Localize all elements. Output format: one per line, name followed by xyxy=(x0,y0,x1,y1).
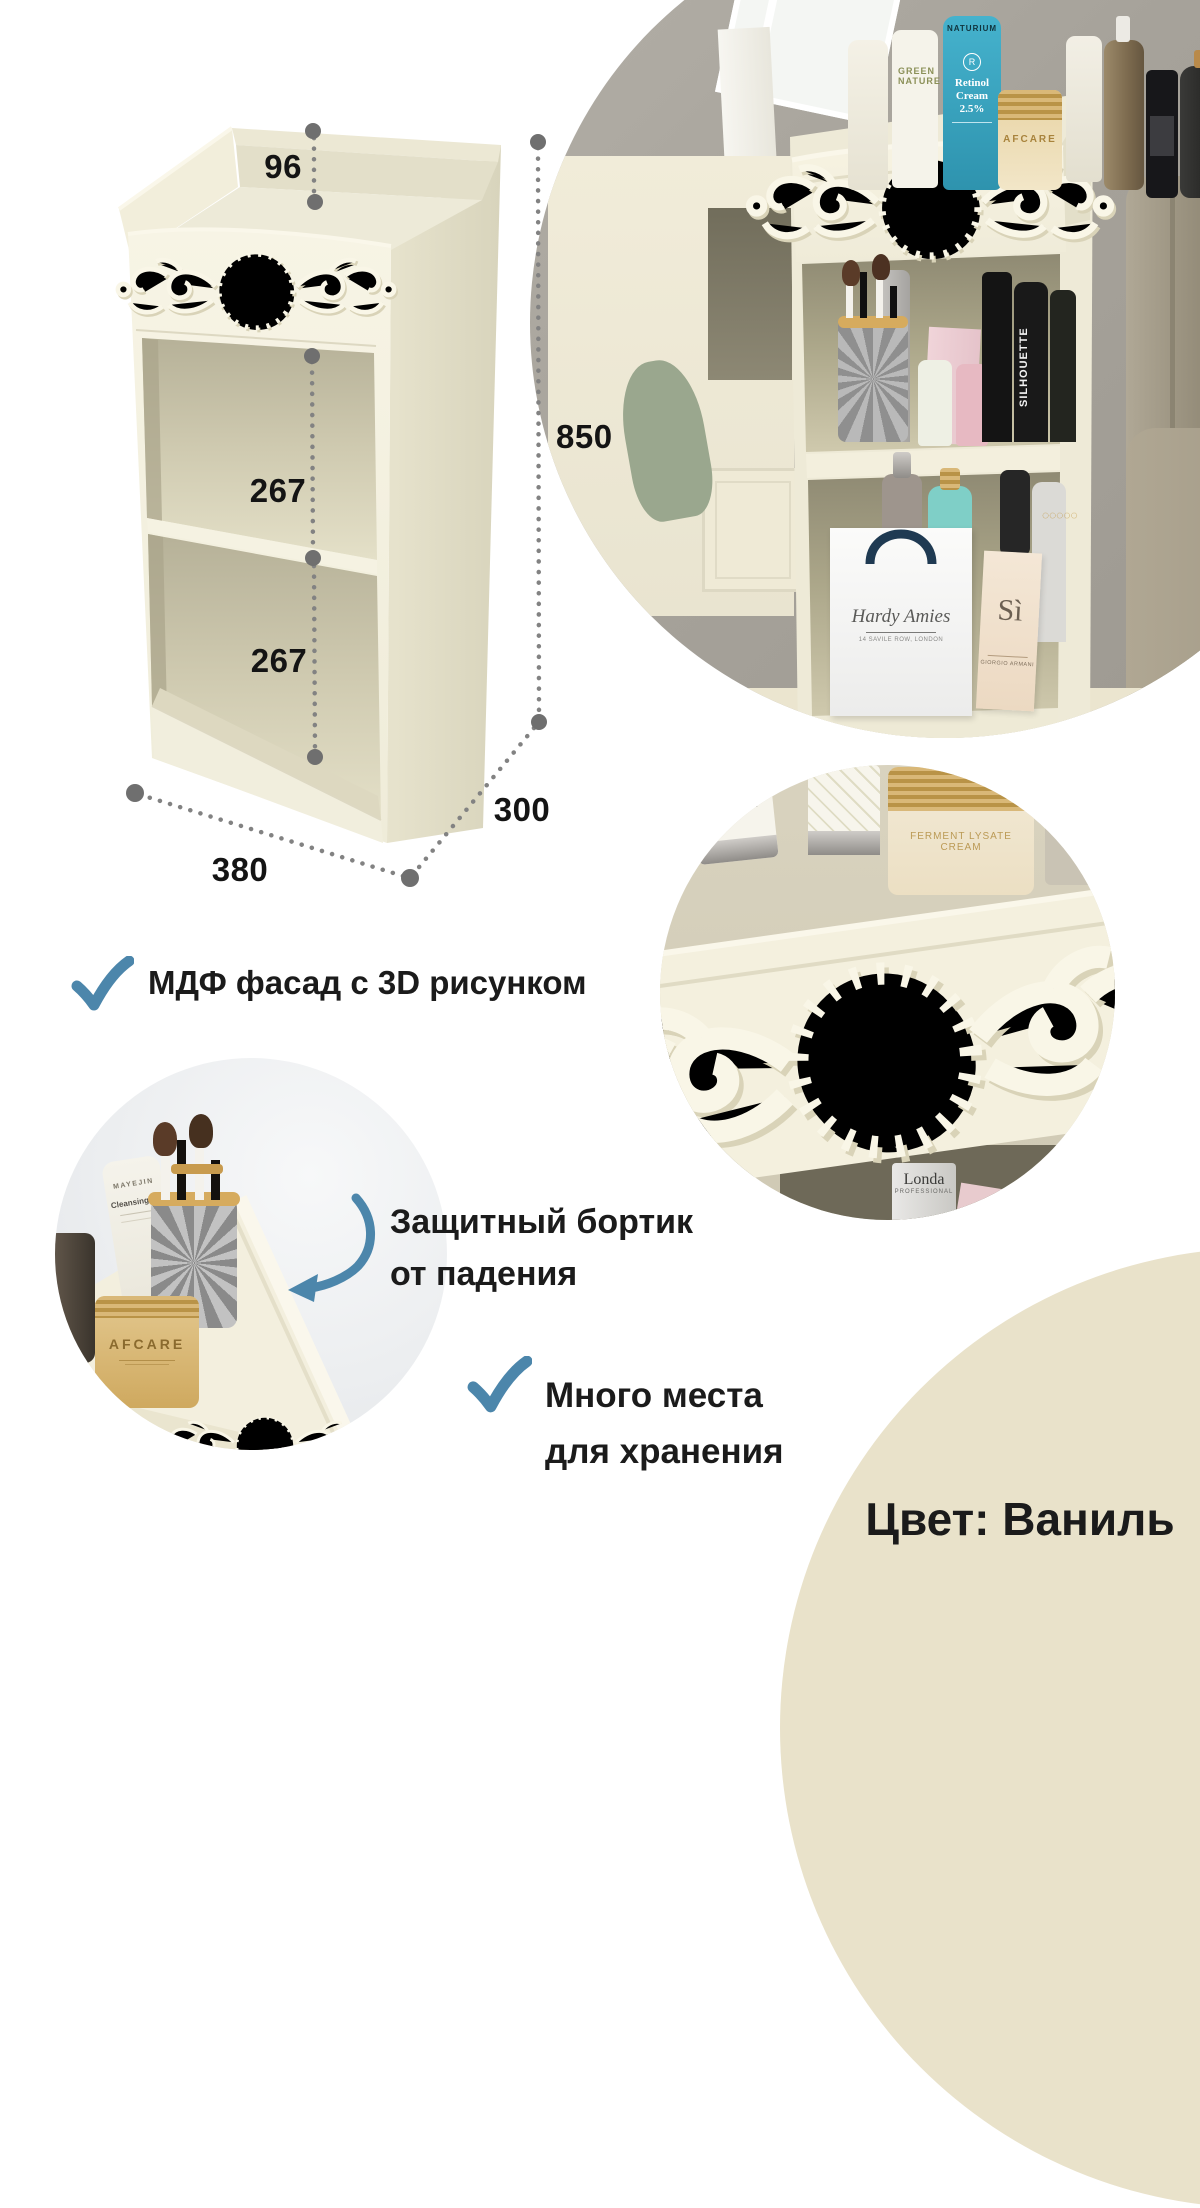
perfume-name: Sì xyxy=(980,593,1040,630)
jar-afcare-gold: AFCARE xyxy=(95,1296,199,1408)
bottle-atomizer-black xyxy=(1000,470,1030,556)
tube-green-nature: GREEN NATURE xyxy=(892,30,938,188)
perfume-brand: GIORGIO ARMANI xyxy=(978,659,1036,668)
cleansing-brand: MAYEJIN xyxy=(104,1176,162,1192)
carved-panel xyxy=(660,765,1115,1220)
perfume-box-si: Sì GIORGIO ARMANI xyxy=(976,551,1042,712)
pump-bottle-bronze xyxy=(1104,40,1144,190)
dim-width: 380 xyxy=(180,851,300,889)
can-silhouette: SILHOUETTE xyxy=(1014,282,1048,442)
dim-depth: 300 xyxy=(462,791,582,829)
naturium-name: Retinol Cream 2.5% xyxy=(943,77,1001,116)
dim-rail-height: 96 xyxy=(230,148,302,186)
can-mousse xyxy=(1050,290,1076,442)
check-icon-storage xyxy=(466,1356,532,1414)
green-line1: GREEN xyxy=(898,66,932,76)
jar-afcare-top: AFCARE xyxy=(998,90,1062,190)
bottle-black-label xyxy=(1146,70,1178,198)
dimension-diagram xyxy=(0,0,660,920)
shopping-bag: Hardy Amies 14 SAVILE ROW, LONDON xyxy=(830,528,972,716)
ornament-circle: MAYEJIN FERMENT LYSATE CREAM Londa PROFE… xyxy=(660,765,1115,1220)
dim-opening-bottom: 267 xyxy=(234,642,324,680)
brush-cup xyxy=(838,316,908,442)
feature-guard: Защитный бортик от падения xyxy=(390,1196,693,1300)
feature-guard-line2: от падения xyxy=(390,1248,693,1300)
bag-sub: 14 SAVILE ROW, LONDON xyxy=(830,637,972,643)
afcare-jar-label: AFCARE xyxy=(95,1336,199,1352)
dark-bottle-left xyxy=(55,1233,95,1363)
flask-black xyxy=(1180,66,1200,198)
bag-brand: Hardy Amies xyxy=(830,606,972,628)
tube-white-small xyxy=(918,360,952,446)
feature-storage-line1: Много места xyxy=(545,1368,784,1424)
feature-mdf: МДФ фасад с 3D рисунком xyxy=(148,964,587,1002)
color-label: Цвет: Ваниль xyxy=(860,1492,1180,1546)
dim-opening-top: 267 xyxy=(233,472,323,510)
tube-white-2 xyxy=(1066,36,1102,182)
arrow-icon xyxy=(270,1180,390,1310)
dim-height: 850 xyxy=(556,418,646,456)
feature-storage: Много места для хранения xyxy=(545,1368,784,1480)
bottle-hairspray-black xyxy=(982,272,1012,442)
product-infographic: { "dimensions": { "rail_height": "96", "… xyxy=(0,0,1200,1600)
tube-naturium: NATURIUM R Retinol Cream 2.5% xyxy=(943,16,1001,190)
silhouette-label: SILHOUETTE xyxy=(1018,302,1044,432)
tube-white-1 xyxy=(848,40,888,190)
check-icon-mdf xyxy=(70,956,134,1012)
green-line2: NATURE xyxy=(898,76,932,86)
feature-storage-line2: для хранения xyxy=(545,1424,784,1480)
afcare-top-label: AFCARE xyxy=(998,134,1062,145)
feature-guard-line1: Защитный бортик xyxy=(390,1196,693,1248)
naturium-brand: NATURIUM xyxy=(943,24,1001,33)
color-circle xyxy=(780,1248,1200,2208)
